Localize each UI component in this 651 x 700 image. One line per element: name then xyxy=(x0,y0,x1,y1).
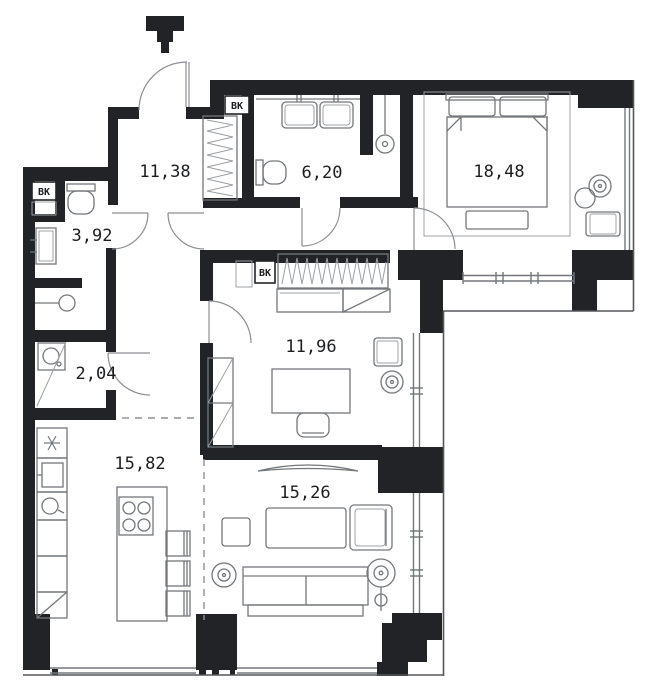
vent-shaft-bathroom: ВК xyxy=(225,96,249,114)
entrance-door-icon xyxy=(139,62,189,110)
desk-chair-icon xyxy=(297,413,329,437)
corridor-door-icon xyxy=(168,213,204,249)
vent-label: ВК xyxy=(259,268,271,279)
desk-icon xyxy=(272,369,350,413)
room-area-label-office: 11,96 xyxy=(285,337,336,357)
cabinet-icon xyxy=(37,556,67,592)
sofa-icon xyxy=(243,567,368,616)
room-area-label-hallway: 11,38 xyxy=(139,162,190,182)
floor-plan: ВК ВК ВК 11,38 6,20 18,48 3,92 11,96 2,0… xyxy=(0,0,651,700)
washing-machine-icon xyxy=(38,343,65,370)
room-area-label-wc: 3,92 xyxy=(72,226,113,246)
armchair-icon xyxy=(374,338,402,366)
vent-label: ВК xyxy=(38,187,50,198)
cooktop-cabinet-icon xyxy=(37,492,67,520)
room-area-label-living: 15,26 xyxy=(279,483,330,503)
bar-stools-icon xyxy=(166,531,190,616)
bathroom-door-icon xyxy=(302,208,340,246)
armchair-icon xyxy=(350,505,392,550)
bedroom-door-icon xyxy=(414,208,455,250)
floor-plan-canvas: ВК ВК ВК 11,38 6,20 18,48 3,92 11,96 2,0… xyxy=(0,0,651,700)
toilet-icon xyxy=(256,160,286,185)
double-sink-icon xyxy=(282,95,353,128)
entrance-marker-icon xyxy=(146,16,184,53)
round-table-icon xyxy=(212,563,236,587)
vent-shaft-office: ВК xyxy=(255,261,275,283)
zone-dashed-lines xyxy=(122,418,204,620)
tv-icon xyxy=(258,465,358,471)
corner-cabinet-icon xyxy=(37,592,67,618)
shower-head-icon xyxy=(35,295,75,311)
cabinet-icon xyxy=(37,520,67,556)
vanity-mirror-icon xyxy=(575,175,611,208)
room-area-label-bedroom: 18,48 xyxy=(473,162,524,182)
shower-head-icon xyxy=(376,95,394,153)
side-table-icon xyxy=(381,371,403,393)
wc-door-icon xyxy=(112,213,148,249)
shelf-diagonal xyxy=(37,342,66,406)
stool-icon xyxy=(586,212,620,236)
fridge-icon xyxy=(37,428,67,458)
room-area-label-bathroom: 6,20 xyxy=(302,163,343,183)
hallway-wardrobe-icon xyxy=(203,116,237,200)
vent-label: ВК xyxy=(231,101,243,112)
kitchen-island-icon xyxy=(117,487,167,621)
toilet-icon xyxy=(67,184,95,214)
vent-shaft-wc: ВК xyxy=(32,182,56,215)
windows xyxy=(50,108,630,673)
side-table-icon xyxy=(222,518,250,546)
floor-lamp-icon xyxy=(367,559,395,611)
room-area-label-kitchen: 15,82 xyxy=(114,454,165,474)
room-area-label-storage: 2,04 xyxy=(76,364,117,384)
office-door-icon xyxy=(209,301,251,343)
console-shelf-icon xyxy=(277,289,390,312)
coffee-table-icon xyxy=(266,508,346,548)
shaft-niche xyxy=(236,261,252,287)
bench-icon xyxy=(466,211,528,229)
storage-fixtures xyxy=(37,342,66,406)
bed-icon xyxy=(446,94,548,207)
kitchen-sink-icon xyxy=(37,458,67,492)
